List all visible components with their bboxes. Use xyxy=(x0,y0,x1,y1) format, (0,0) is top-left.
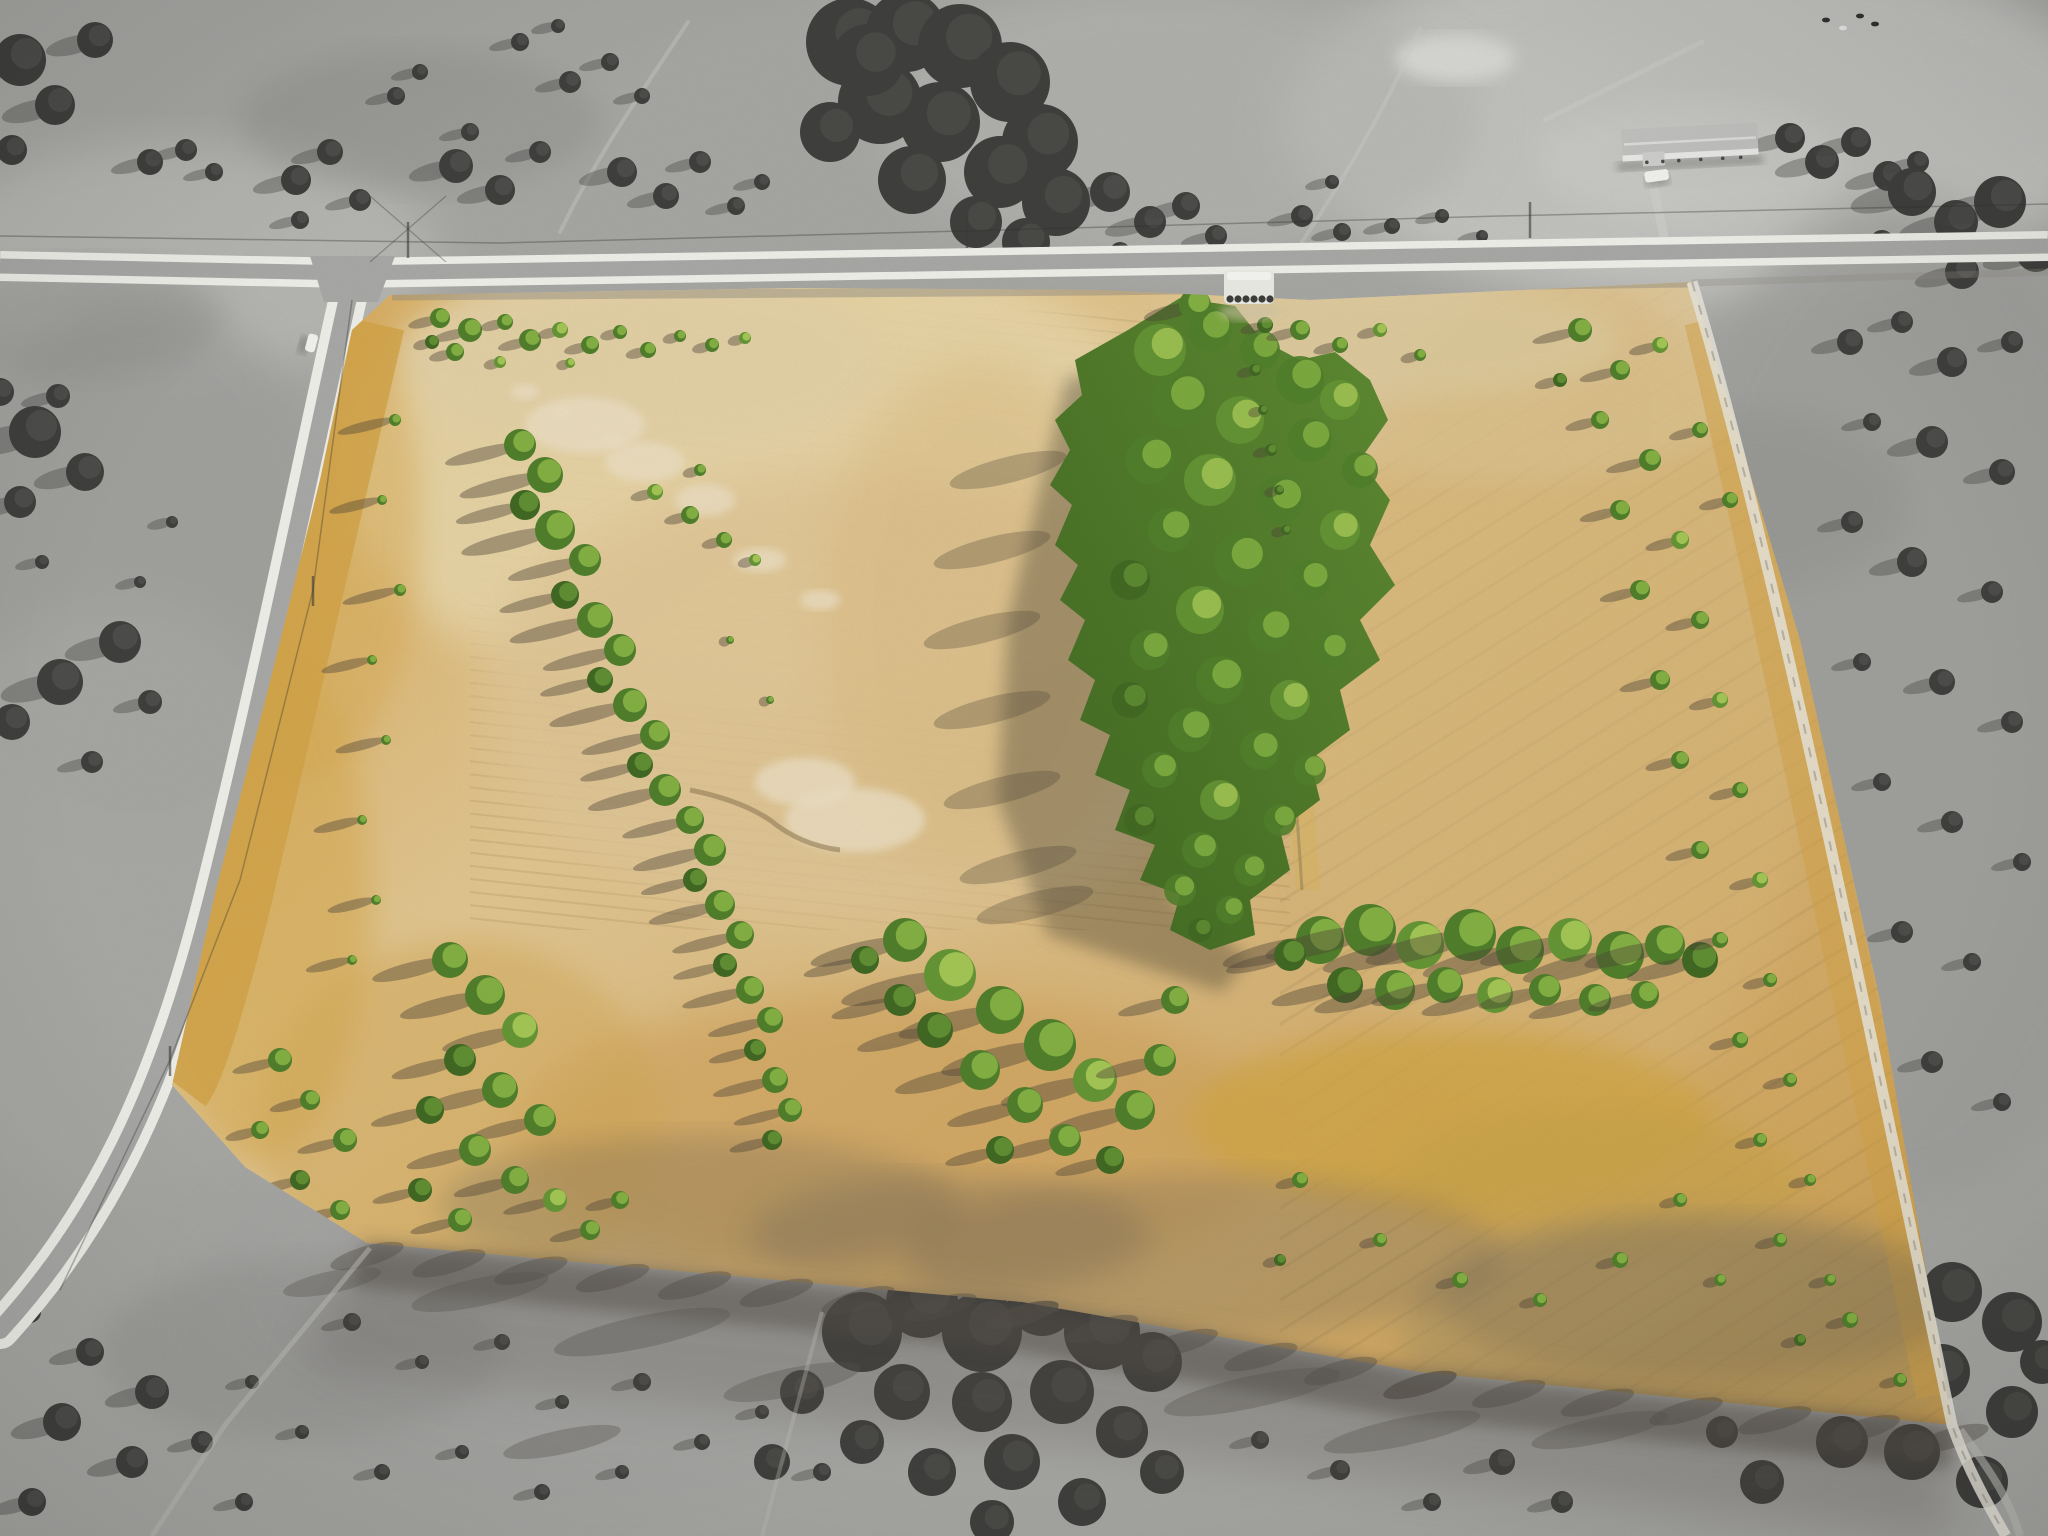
screenshot-root xyxy=(0,0,2048,1536)
vignette xyxy=(0,0,2048,1536)
aerial-photo xyxy=(0,0,2048,1536)
